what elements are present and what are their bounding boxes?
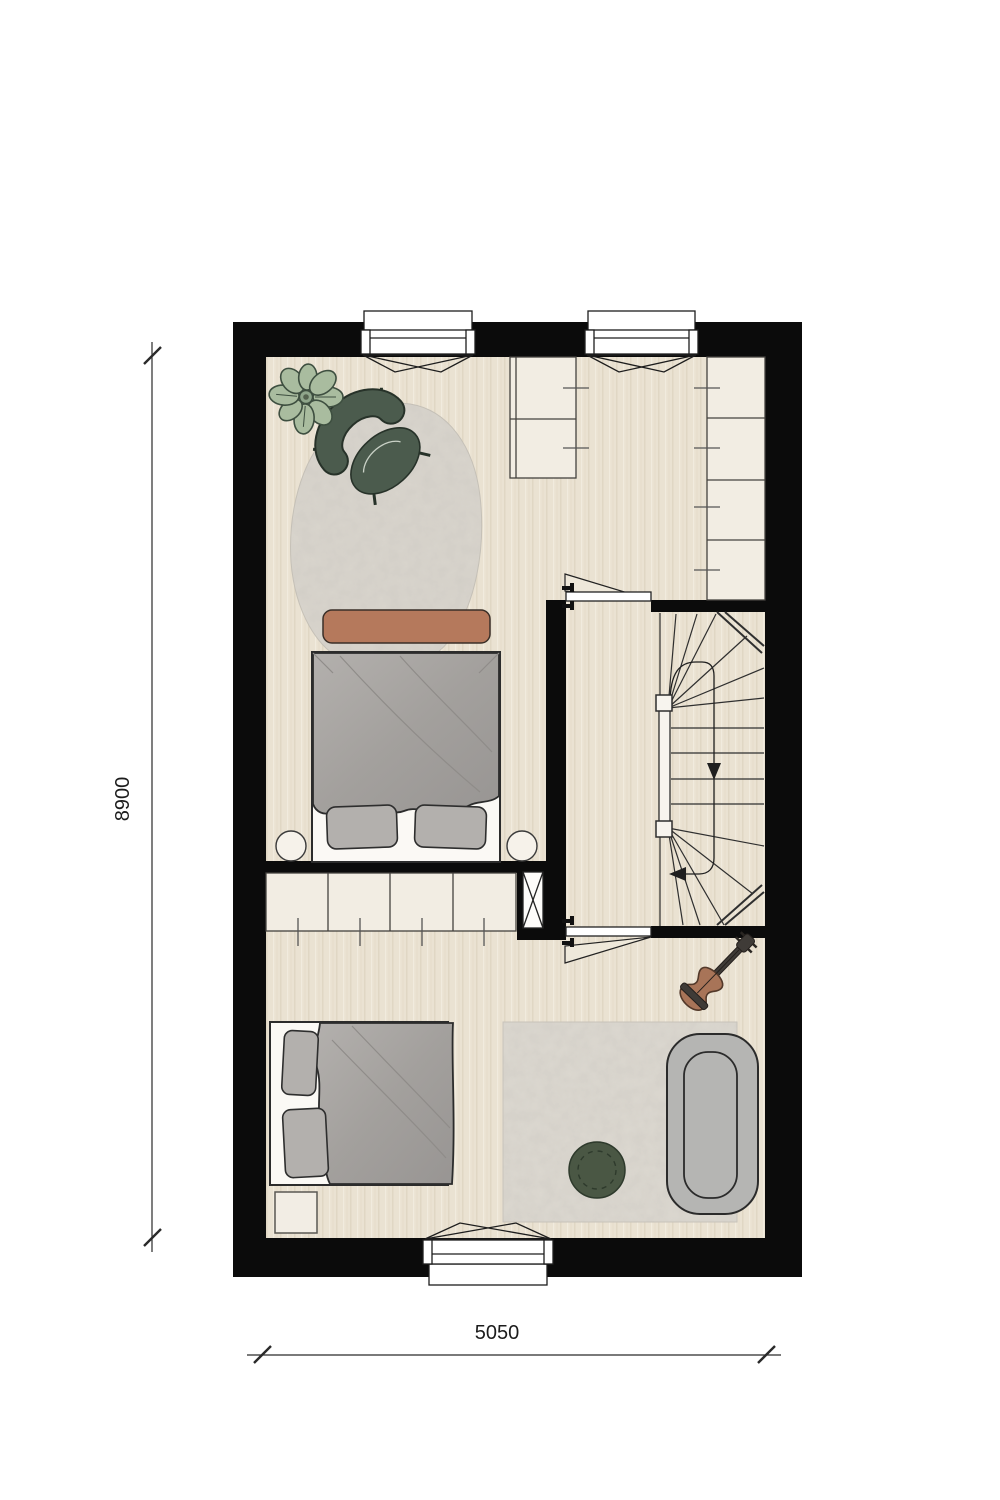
nightstand-left-icon bbox=[276, 831, 306, 861]
floor-plan-page: 8900 5050 bbox=[0, 0, 1000, 1500]
side-table-icon bbox=[275, 1192, 317, 1233]
floor-plan-drawing: 8900 5050 bbox=[0, 0, 1000, 1500]
dim-height-label: 8900 bbox=[112, 777, 134, 822]
wall-stair-top bbox=[651, 600, 765, 612]
double-bed-2-icon bbox=[270, 1022, 454, 1185]
bench-icon bbox=[323, 610, 490, 643]
nightstand-right-icon bbox=[507, 831, 537, 861]
newel-post-top bbox=[656, 695, 672, 711]
pouf-icon bbox=[569, 1142, 625, 1198]
sofa-icon bbox=[667, 1034, 758, 1214]
newel-post-bottom bbox=[656, 821, 672, 837]
duct-shaft-icon bbox=[523, 872, 543, 928]
wall-corridor bbox=[546, 600, 566, 940]
stair-railing bbox=[659, 700, 670, 836]
dim-width-label: 5050 bbox=[475, 1322, 520, 1344]
double-bed-1-icon bbox=[312, 652, 500, 862]
